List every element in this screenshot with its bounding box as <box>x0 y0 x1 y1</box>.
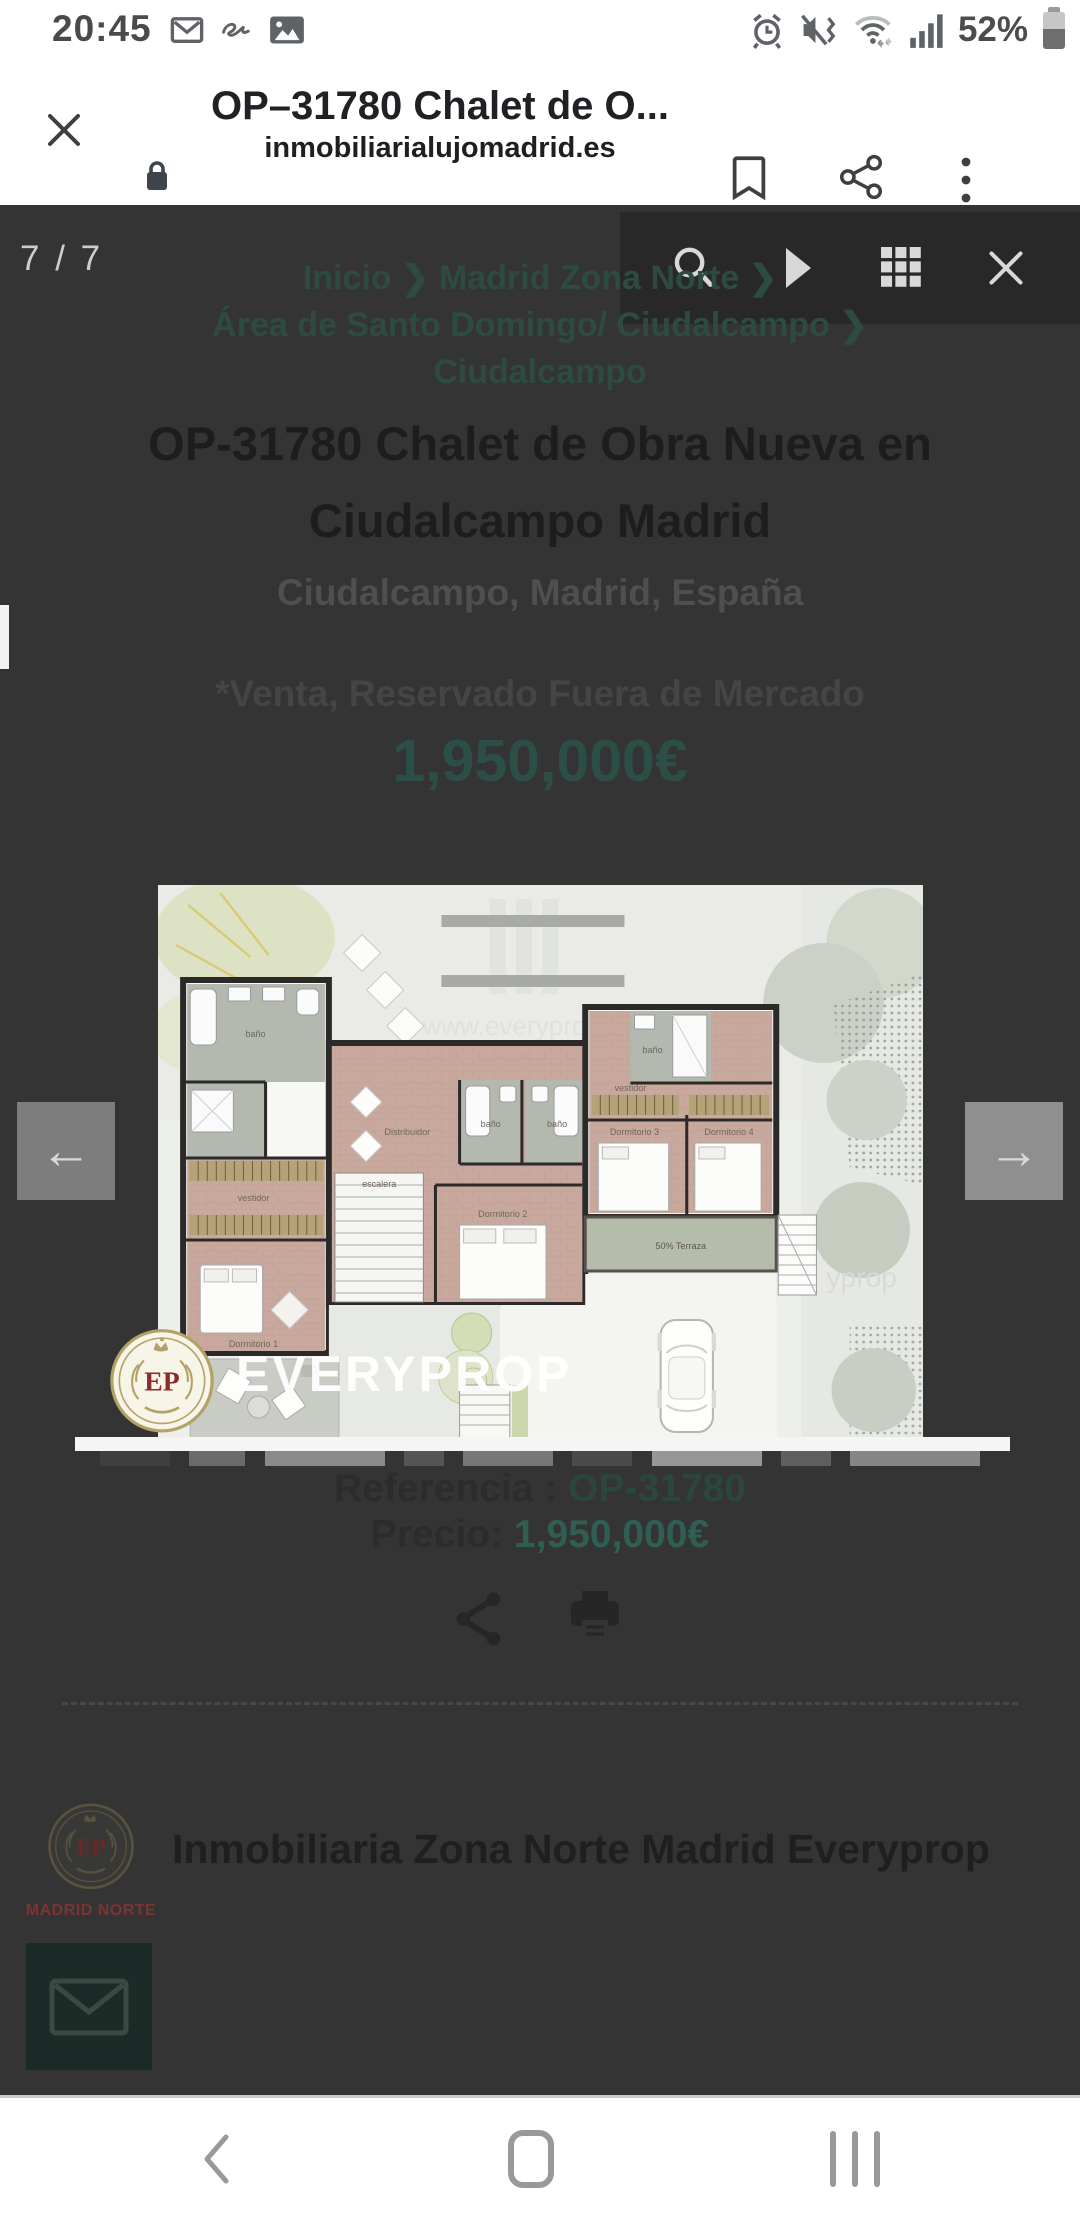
svg-text:50% Terraza: 50% Terraza <box>655 1241 707 1251</box>
alarm-icon <box>748 11 786 49</box>
listing-title: OP-31780 Chalet de Obra Nueva en Ciudalc… <box>60 405 1020 559</box>
share-icon[interactable] <box>838 154 884 200</box>
nav-recents-button[interactable] <box>830 2131 880 2187</box>
breadcrumb-line-1: Inicio ❯ Madrid Zona Norte ❯ <box>0 255 1080 302</box>
car-top-view <box>658 1320 716 1432</box>
page-white-strip <box>75 1437 1010 1451</box>
nav-back-button[interactable] <box>200 2132 232 2186</box>
agency-name: Inmobiliaria Zona Norte Madrid Everyprop <box>172 1826 1062 1873</box>
battery-icon <box>1042 7 1066 53</box>
mute-vibrate-icon <box>800 11 838 49</box>
nav-home-button[interactable] <box>508 2130 554 2188</box>
next-image-button[interactable]: → <box>965 1102 1063 1200</box>
scrollbar-thumb[interactable] <box>0 605 9 669</box>
listing-availability: *Venta, Reservado Fuera de Mercado <box>0 673 1080 715</box>
thumbnail-strip <box>100 1451 980 1466</box>
browser-custom-tab-bar: OP–31780 Chalet de O... inmobiliarialujo… <box>0 60 1080 205</box>
status-indicators: 52% <box>748 0 1066 60</box>
price-label: Precio: <box>371 1513 514 1556</box>
gallery-notification-icon <box>268 12 306 48</box>
listing-location: Ciudalcampo, Madrid, España <box>0 572 1080 614</box>
svg-text:Distribuidor: Distribuidor <box>384 1127 430 1137</box>
svg-text:Dormitorio 4: Dormitorio 4 <box>704 1127 753 1137</box>
share-listing-icon <box>452 1591 506 1647</box>
browser-url: inmobiliarialujomadrid.es <box>150 130 730 166</box>
everyprop-watermark-text: EVERYPROP <box>236 1345 572 1403</box>
page-title-block: OP–31780 Chalet de O... inmobiliarialujo… <box>150 82 730 166</box>
breadcrumb: Inicio ❯ Madrid Zona Norte ❯ Área de San… <box>0 255 1080 396</box>
arrow-right-icon: → <box>988 1125 1040 1177</box>
agency-logo-caption: MADRID NORTE <box>24 1902 158 1920</box>
arrow-left-icon: ← <box>40 1125 92 1177</box>
svg-text:escalera: escalera <box>362 1179 397 1189</box>
svg-text:yprop: yprop <box>826 1262 896 1293</box>
svg-text:baño: baño <box>481 1119 501 1129</box>
svg-text:Dormitorio 3: Dormitorio 3 <box>610 1127 659 1137</box>
wifi-icon <box>852 11 896 49</box>
browser-page-title: OP–31780 Chalet de O... <box>150 82 730 130</box>
android-navigation-bar <box>0 2095 1080 2220</box>
close-tab-icon[interactable] <box>36 102 92 158</box>
print-listing-icon <box>566 1589 624 1645</box>
everyprop-crest-logo: EP <box>98 1320 226 1448</box>
svg-text:vestidor: vestidor <box>615 1083 647 1093</box>
envelope-icon <box>49 1978 129 2036</box>
svg-text:baño: baño <box>245 1029 265 1039</box>
signature-app-notification-icon <box>218 12 256 48</box>
signal-bars-icon <box>910 11 944 49</box>
reference-value: OP-31780 <box>568 1467 746 1510</box>
clock-text: 20:45 <box>52 8 152 50</box>
svg-text:EP: EP <box>76 1834 105 1859</box>
breadcrumb-line-2: Área de Santo Domingo/ Ciudalcampo ❯ <box>0 302 1080 349</box>
breadcrumb-line-3: Ciudalcampo <box>0 349 1080 396</box>
price-value: 1,950,000€ <box>514 1513 709 1556</box>
svg-text:vestidor: vestidor <box>238 1193 270 1203</box>
reference-line: Referencia : OP-31780 <box>0 1467 1080 1511</box>
battery-percent-text: 52% <box>958 10 1028 50</box>
previous-image-button[interactable]: ← <box>17 1102 115 1200</box>
contact-email-button <box>26 1943 152 2070</box>
status-bar: 20:45 <box>0 0 1080 60</box>
svg-text:baño: baño <box>643 1045 663 1055</box>
agency-logo: EP <box>38 1796 144 1902</box>
svg-text:Dormitorio 2: Dormitorio 2 <box>478 1209 527 1219</box>
svg-text:baño: baño <box>547 1119 567 1129</box>
price-line: Precio: 1,950,000€ <box>0 1513 1080 1557</box>
gmail-notification-icon <box>168 12 206 48</box>
dashed-divider <box>62 1702 1018 1705</box>
gallery-overlay: 7 / 7 Inicio ❯ Madrid Zona Norte ❯ Área … <box>0 205 1080 2095</box>
reference-label: Referencia : <box>334 1467 568 1510</box>
svg-text:EP: EP <box>144 1365 179 1396</box>
bookmark-icon[interactable] <box>728 152 770 202</box>
listing-price: 1,950,000€ <box>0 727 1080 795</box>
overflow-menu-icon[interactable] <box>946 150 986 210</box>
